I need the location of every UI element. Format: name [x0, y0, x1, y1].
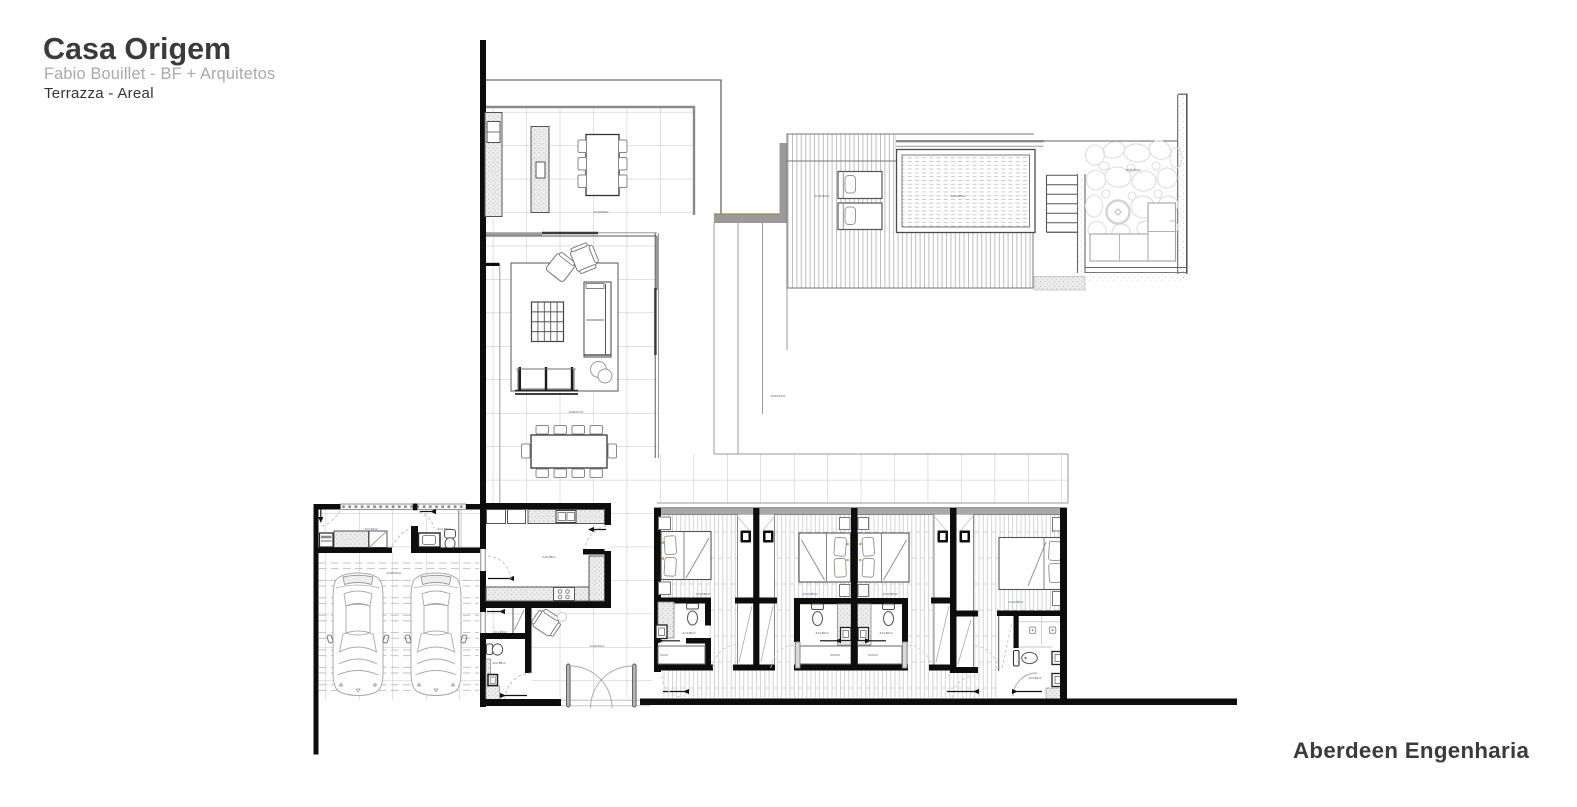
svg-text:A=31.86m²: A=31.86m²	[1126, 168, 1141, 172]
svg-text:A=35.00m²: A=35.00m²	[387, 571, 402, 575]
svg-text:Fabio Bouillet - BF + Arquitet: Fabio Bouillet - BF + Arquitetos	[44, 65, 275, 83]
svg-text:A=24.96m²: A=24.96m²	[951, 194, 966, 198]
svg-text:A=31.86m²: A=31.86m²	[815, 194, 830, 198]
svg-text:A=1.85m²: A=1.85m²	[437, 527, 450, 531]
svg-text:A=4.50m²: A=4.50m²	[682, 631, 695, 635]
svg-text:A=4.50m²: A=4.50m²	[815, 631, 828, 635]
svg-text:Aberdeen Engenharia: Aberdeen Engenharia	[1293, 738, 1529, 763]
svg-text:A=12.85m²: A=12.85m²	[696, 592, 711, 596]
svg-text:A=24.50m²: A=24.50m²	[594, 210, 609, 214]
svg-text:A=2.80m²: A=2.80m²	[492, 661, 505, 665]
svg-text:A=13.26m²: A=13.26m²	[590, 644, 605, 648]
svg-text:A=12.85m²: A=12.85m²	[1009, 600, 1024, 604]
svg-text:Casa Origem: Casa Origem	[43, 32, 231, 66]
svg-text:A=4.50m²: A=4.50m²	[1028, 676, 1041, 680]
svg-text:A=63.26m²: A=63.26m²	[771, 394, 786, 398]
svg-text:A=12.85m²: A=12.85m²	[803, 592, 818, 596]
svg-text:A=60.57m²: A=60.57m²	[569, 410, 584, 414]
svg-text:A=12.85m²: A=12.85m²	[883, 592, 898, 596]
svg-text:A=9.28m²: A=9.28m²	[542, 555, 555, 559]
svg-text:Terrazza - Areal: Terrazza - Areal	[44, 85, 154, 102]
svg-text:A=3.15m²: A=3.15m²	[364, 527, 377, 531]
svg-text:A=4.50m²: A=4.50m²	[879, 631, 892, 635]
